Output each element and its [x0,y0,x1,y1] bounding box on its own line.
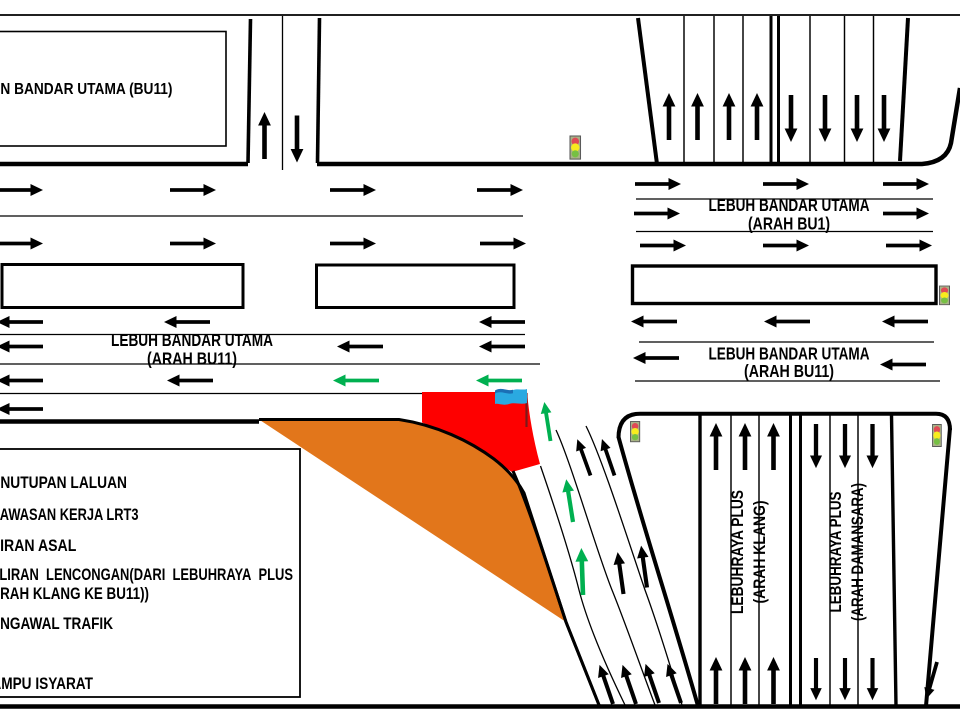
svg-text:LEBUH BANDAR UTAMA: LEBUH BANDAR UTAMA [111,330,273,350]
svg-text:(ARAH BU11): (ARAH BU11) [147,349,237,369]
svg-text:(ARAH BU1): (ARAH BU1) [748,214,830,234]
svg-text:LAMPU ISYARAT: LAMPU ISYARAT [0,675,93,693]
svg-text:PENUTUPAN LALUAN: PENUTUPAN LALUAN [0,474,127,492]
svg-text:PERSIARAN BANDAR UTAMA (BU11): PERSIARAN BANDAR UTAMA (BU11) [0,81,173,98]
svg-text:LEBUHRAYA PLUS: LEBUHRAYA PLUS [826,492,845,613]
svg-text:ALIRAN ASAL: ALIRAN ASAL [0,537,76,555]
svg-text:LEBUHRAYA PLUS: LEBUHRAYA PLUS [728,490,747,614]
svg-text:(ARAH BU11): (ARAH BU11) [744,361,834,381]
svg-text:(ARAH KLANG): (ARAH KLANG) [750,501,769,604]
svg-text:ALIRAN LENCONGAN(DARI LEBUHR: ALIRAN LENCONGAN(DARI LEBUHRAYA PLUS [0,566,293,584]
svg-text:PENGAWAL TRAFIK: PENGAWAL TRAFIK [0,615,113,633]
svg-text:LEBUH BANDAR UTAMA: LEBUH BANDAR UTAMA [709,195,870,215]
svg-text:(ARAH DAMANSARA): (ARAH DAMANSARA) [848,483,867,621]
svg-text:(ARAH KLANG KE BU11)): (ARAH KLANG KE BU11)) [0,585,149,603]
svg-text:KAWASAN KERJA LRT3: KAWASAN KERJA LRT3 [0,506,139,524]
